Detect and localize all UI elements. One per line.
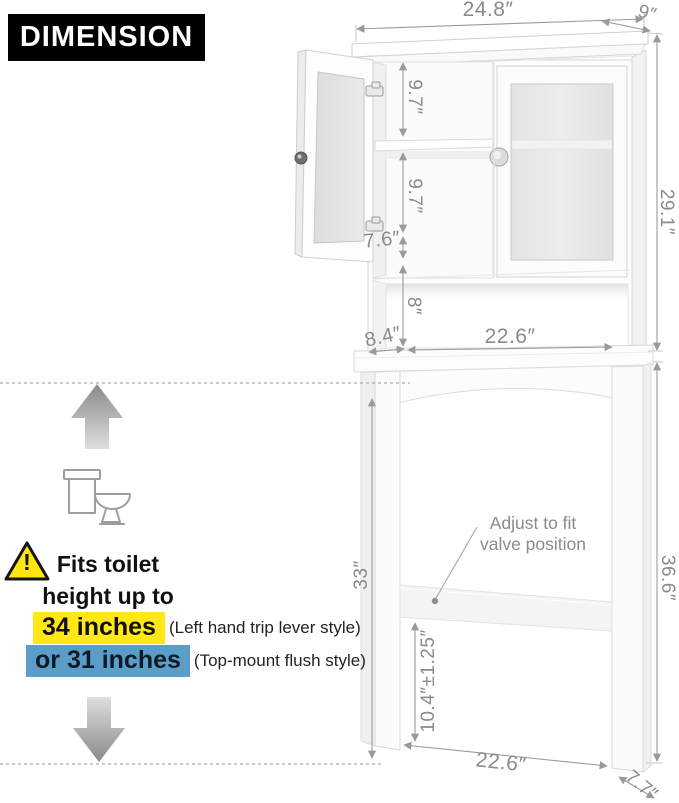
fit-option-2-note: (Top-mount flush style) (194, 651, 366, 671)
dimension-diagram: DIMENSION 24.8″ 9″ 29.1″ 9.7″ 9.7″ 7.6″ … (0, 0, 679, 803)
up-arrow-icon (71, 384, 123, 449)
dim-top-width: 24.8″ (428, 0, 548, 20)
valve-note-line2: valve position (448, 534, 618, 555)
fit-text-line1: Fits toilet (0, 551, 216, 577)
fit-option-2: or 31 inches (Top-mount flush style) (26, 645, 366, 677)
valve-position-note: Adjust to fit valve position (448, 513, 618, 555)
fit-option-1-note: (Left hand trip lever style) (169, 618, 361, 638)
dim-cabinet-height: 29.1″ (656, 182, 676, 242)
dim-valve-range: 10.4″±1.25″ (419, 621, 439, 741)
fit-option-2-highlight: or 31 inches (26, 645, 190, 677)
fit-option-1: 34 inches (Left hand trip lever style) (33, 612, 361, 644)
dim-cubby-width: 22.6″ (455, 327, 565, 347)
dim-shelf-upper: 9.7″ (404, 67, 424, 127)
cabinet-line-drawing (0, 0, 679, 803)
fit-option-1-highlight: 34 inches (33, 612, 165, 644)
dim-frame-height: 36.6″ (657, 548, 677, 608)
dim-door-gap: 7.6″ (355, 227, 409, 252)
down-arrow-icon (73, 697, 125, 762)
dim-shelf-lower: 9.7″ (404, 166, 424, 226)
valve-note-line1: Adjust to fit (448, 513, 618, 534)
fit-text-line2: height up to (0, 583, 216, 609)
dim-leg-height: 33″ (352, 545, 372, 605)
toilet-icon (60, 465, 135, 535)
page-title: DIMENSION (8, 14, 205, 61)
